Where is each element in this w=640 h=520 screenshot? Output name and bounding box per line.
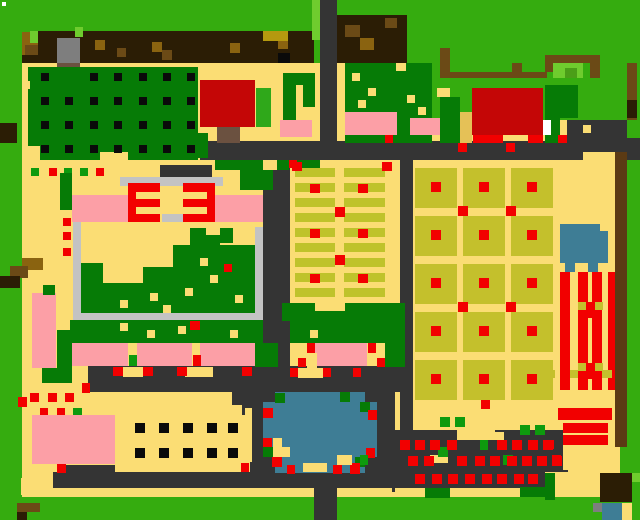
village-map-canvas[interactable] [0, 0, 640, 520]
misc-tile [2, 2, 6, 6]
layer-misc [0, 0, 640, 520]
